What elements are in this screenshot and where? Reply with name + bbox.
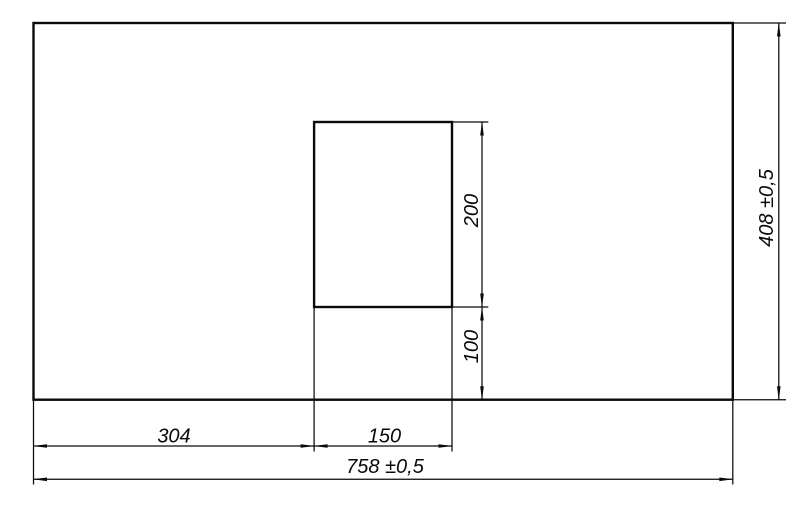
svg-text:758 ±0,5: 758 ±0,5 — [346, 456, 425, 478]
svg-text:304: 304 — [157, 426, 190, 448]
svg-text:150: 150 — [368, 426, 401, 448]
svg-text:200: 200 — [461, 194, 483, 228]
svg-text:100: 100 — [461, 330, 483, 363]
svg-text:408 ±0,5: 408 ±0,5 — [756, 168, 778, 247]
